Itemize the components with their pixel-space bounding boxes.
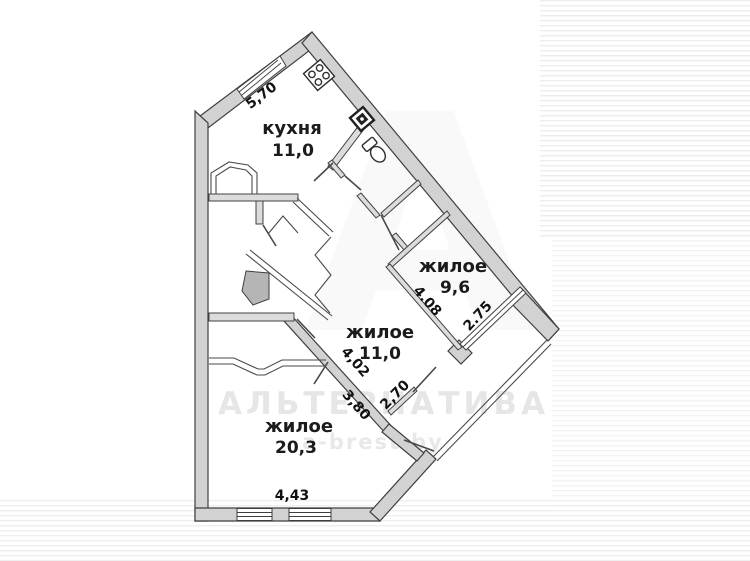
living-mid-name-label: жилое — [346, 322, 414, 343]
paper-texture-right — [552, 240, 750, 510]
dim-living-large-window: 4,43 — [275, 488, 310, 504]
window-glass — [237, 509, 272, 521]
wardrobe-door-zigzag — [268, 216, 298, 234]
floorplan-page: А АЛЬТЕРНАТИВА a-brest.by — [0, 0, 750, 561]
window-glass — [289, 509, 331, 521]
hall-south-wall — [209, 313, 294, 321]
living-small-name-label: жилое — [419, 256, 487, 277]
living-large-area-label: 20,3 — [275, 438, 317, 458]
outer-wall-bottom — [195, 508, 380, 521]
living-large-name-label: жилое — [265, 416, 333, 437]
floorplan-drawing: А АЛЬТЕРНАТИВА a-brest.by — [0, 0, 750, 561]
living-small-area-label: 9,6 — [440, 278, 470, 298]
kitchen-area-label: 11,0 — [272, 141, 314, 161]
hall-closet-stub — [256, 201, 263, 224]
kitchen-south-wall — [209, 194, 298, 201]
outer-wall-left — [195, 111, 208, 521]
watermark-big-letter: А — [304, 52, 538, 401]
closet-door-leaf — [263, 225, 276, 246]
ventilation-shaft — [242, 271, 269, 305]
paper-texture-top-right — [540, 0, 750, 240]
kitchen-name-label: кухня — [262, 118, 322, 139]
kitchen-niche — [211, 162, 257, 194]
kitchen-niche-inner — [216, 167, 252, 194]
